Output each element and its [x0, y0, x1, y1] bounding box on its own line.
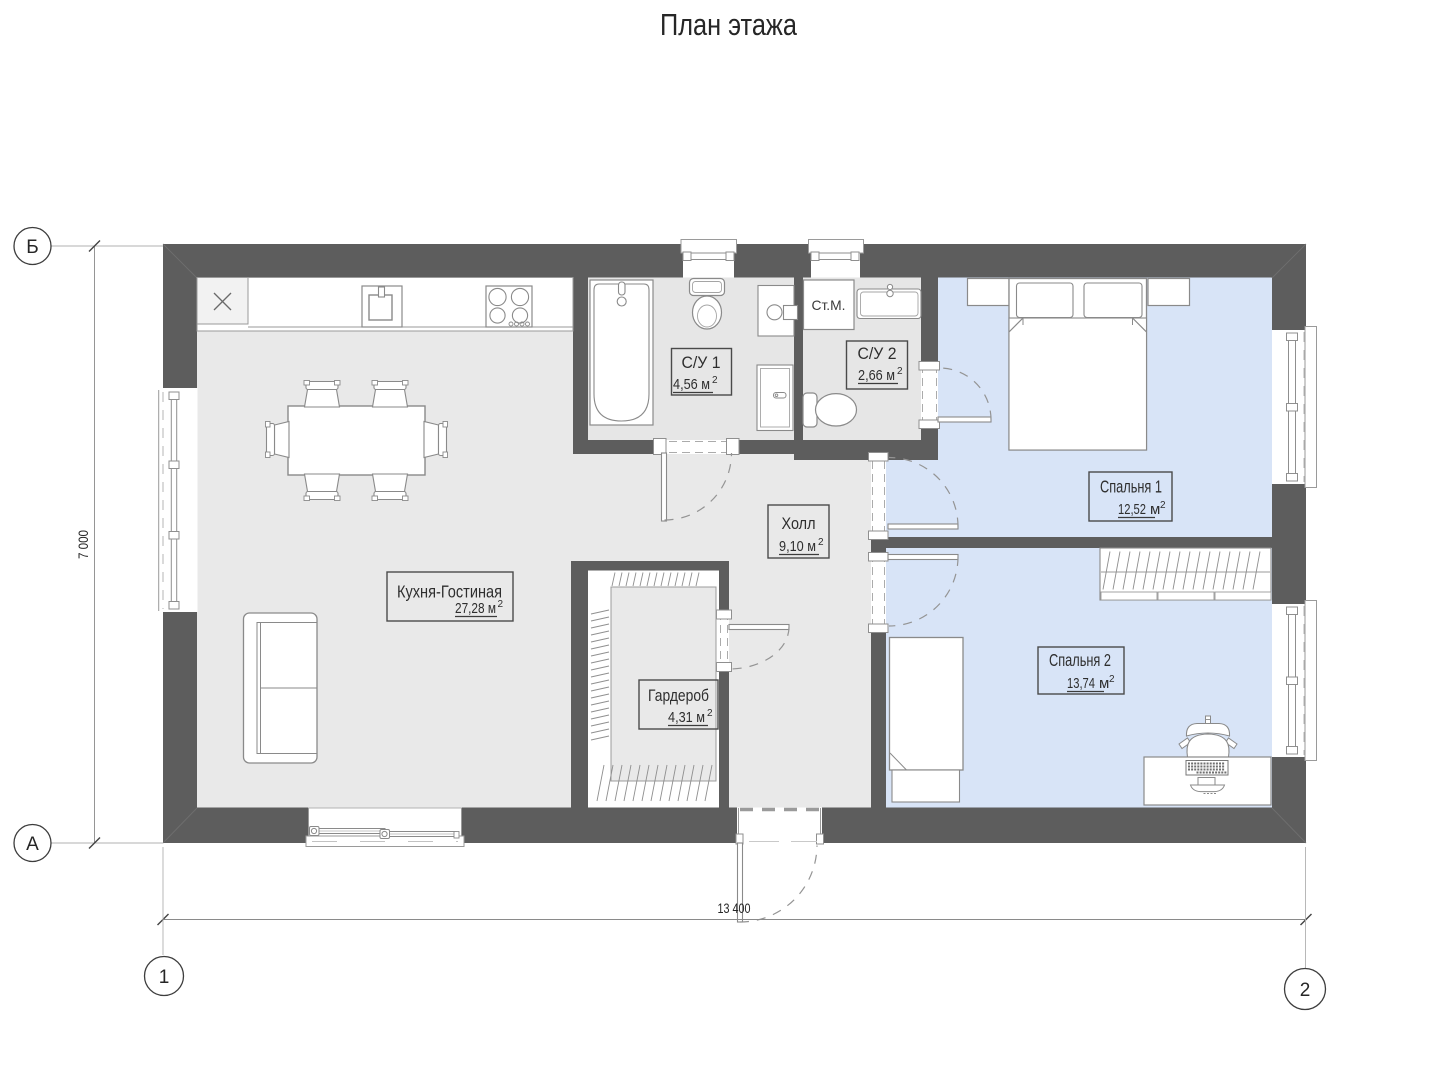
svg-text:2: 2 [707, 708, 713, 719]
svg-text:Спальня 1: Спальня 1 [1100, 477, 1162, 497]
svg-text:С/У 2: С/У 2 [858, 344, 897, 363]
svg-text:2: 2 [712, 375, 718, 386]
svg-text:Ст.М.: Ст.М. [812, 297, 846, 313]
svg-text:4,56 м: 4,56 м [673, 376, 710, 393]
svg-text:12,52: 12,52 [1118, 501, 1146, 518]
svg-text:2: 2 [1160, 500, 1166, 511]
svg-text:м: м [1099, 675, 1109, 692]
svg-text:4,31 м: 4,31 м [668, 709, 705, 726]
svg-text:7 000: 7 000 [76, 530, 91, 559]
svg-text:2: 2 [1300, 980, 1311, 1001]
svg-text:Гардероб: Гардероб [648, 686, 709, 705]
svg-text:13,74: 13,74 [1067, 675, 1095, 692]
svg-text:Кухня-Гостиная: Кухня-Гостиная [397, 582, 502, 602]
svg-text:Б: Б [26, 237, 38, 258]
svg-text:9,10 м: 9,10 м [779, 538, 816, 555]
svg-text:План этажа: План этажа [660, 7, 798, 42]
svg-text:Спальня 2: Спальня 2 [1049, 650, 1111, 670]
svg-text:А: А [26, 834, 39, 855]
svg-text:2,66 м: 2,66 м [858, 367, 895, 384]
svg-text:2: 2 [1109, 674, 1115, 685]
svg-text:С/У 1: С/У 1 [682, 353, 721, 372]
svg-text:Холл: Холл [782, 514, 816, 533]
svg-text:2: 2 [498, 599, 504, 610]
svg-text:13 400: 13 400 [718, 901, 751, 916]
svg-text:27,28 м: 27,28 м [455, 600, 496, 617]
svg-text:м: м [1150, 501, 1160, 518]
svg-text:1: 1 [159, 967, 170, 988]
svg-text:2: 2 [818, 537, 824, 548]
svg-text:2: 2 [897, 366, 903, 377]
